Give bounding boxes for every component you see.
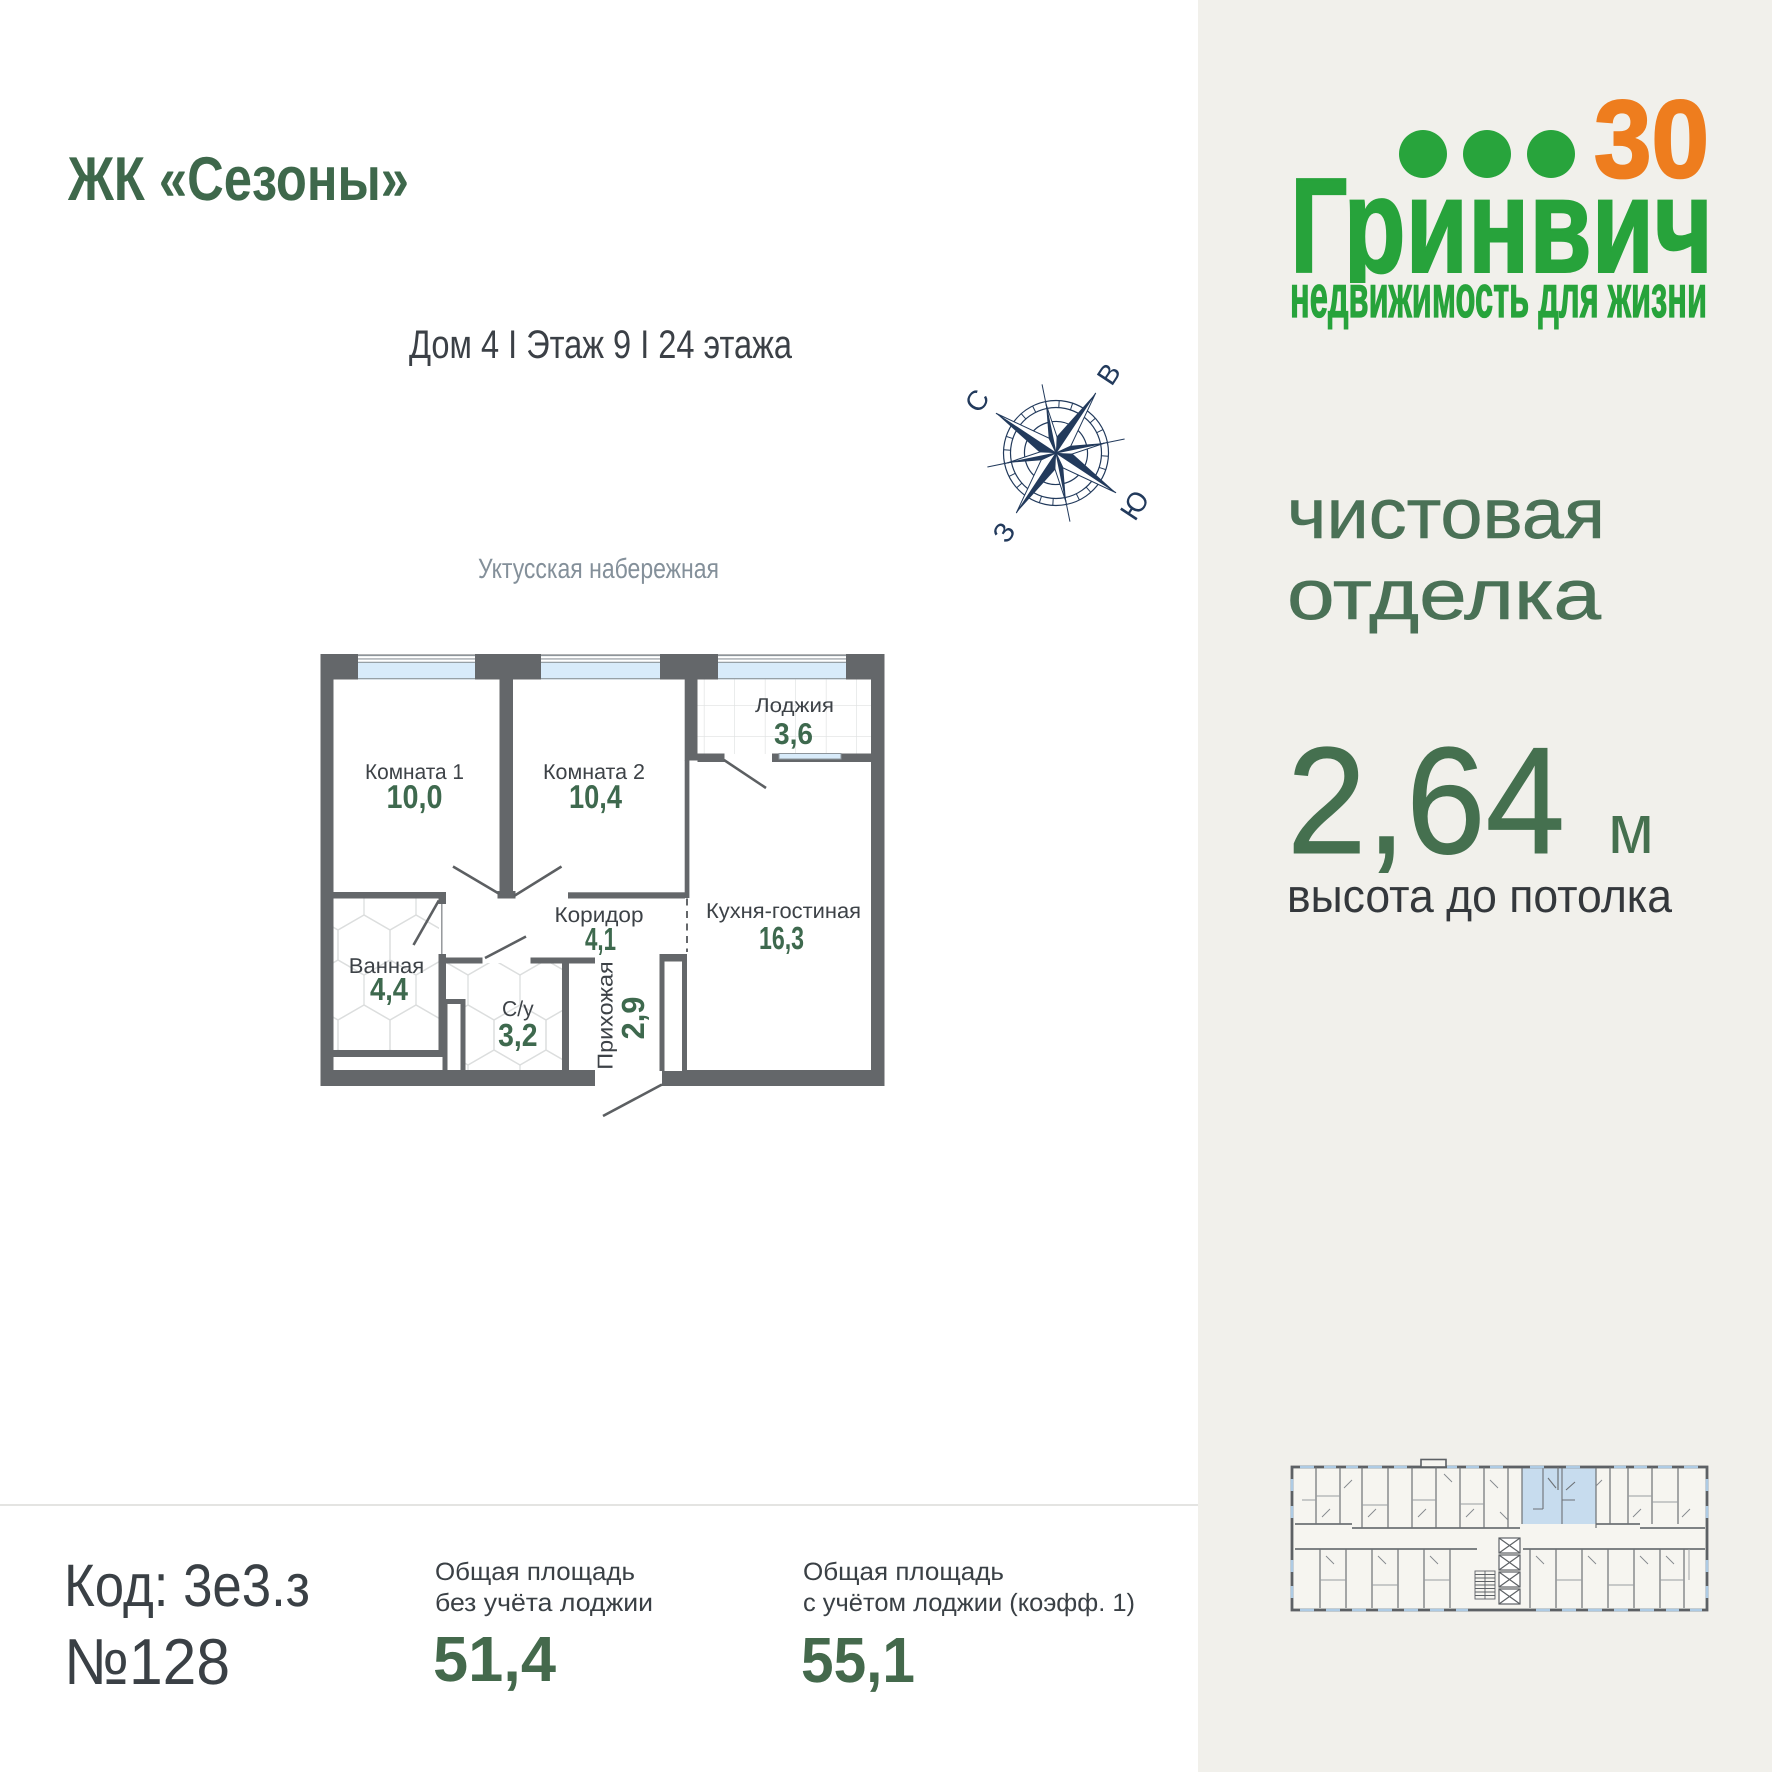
svg-text:В: В xyxy=(1091,358,1127,391)
svg-text:Общая площадь: Общая площадь xyxy=(435,1558,635,1586)
svg-text:недвижимость для жизни: недвижимость для жизни xyxy=(1290,263,1707,330)
svg-text:4,1: 4,1 xyxy=(585,921,616,957)
svg-text:отделка: отделка xyxy=(1287,556,1602,635)
svg-text:16,3: 16,3 xyxy=(759,920,804,956)
svg-text:м: м xyxy=(1608,790,1654,868)
svg-text:Прихожая: Прихожая xyxy=(594,961,618,1070)
svg-text:55,1: 55,1 xyxy=(801,1624,915,1696)
svg-text:С: С xyxy=(959,384,996,418)
svg-text:Код: 3е3.з: Код: 3е3.з xyxy=(64,1552,310,1619)
svg-text:2,64: 2,64 xyxy=(1287,716,1565,886)
svg-text:без учёта лоджии: без учёта лоджии xyxy=(435,1589,653,1617)
svg-text:10,0: 10,0 xyxy=(387,778,443,815)
svg-text:с учётом лоджии (коэфф. 1): с учётом лоджии (коэфф. 1) xyxy=(803,1589,1135,1617)
svg-text:Лоджия: Лоджия xyxy=(755,695,834,717)
svg-text:2,9: 2,9 xyxy=(615,997,651,1040)
svg-text:№128: №128 xyxy=(64,1625,230,1698)
svg-text:Общая площадь: Общая площадь xyxy=(803,1558,1004,1586)
svg-text:4,4: 4,4 xyxy=(370,971,408,1007)
svg-text:высота до потолка: высота до потолка xyxy=(1287,869,1673,922)
svg-text:10,4: 10,4 xyxy=(569,778,623,815)
svg-text:51,4: 51,4 xyxy=(433,1623,556,1695)
svg-text:Дом 4 I Этаж 9 I 24 этажа: Дом 4 I Этаж 9 I 24 этажа xyxy=(409,323,793,367)
svg-text:З: З xyxy=(986,517,1021,548)
svg-text:чистовая: чистовая xyxy=(1287,475,1605,554)
svg-text:Уктусская набережная: Уктусская набережная xyxy=(478,553,719,584)
svg-text:ЖК «Сезоны»: ЖК «Сезоны» xyxy=(67,145,409,214)
svg-text:3,2: 3,2 xyxy=(498,1017,537,1053)
svg-text:3,6: 3,6 xyxy=(774,718,813,751)
svg-text:Ю: Ю xyxy=(1114,485,1155,526)
